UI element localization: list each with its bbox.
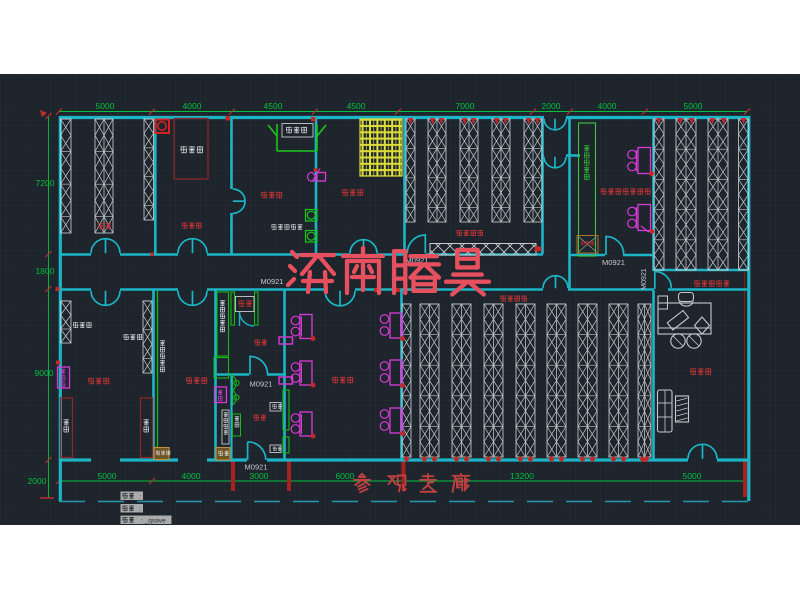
svg-text:2000: 2000 xyxy=(28,476,47,486)
svg-text:7200: 7200 xyxy=(36,178,55,188)
svg-text:9000: 9000 xyxy=(35,368,54,378)
svg-text:M0921: M0921 xyxy=(250,380,273,389)
svg-text:M0921: M0921 xyxy=(641,268,648,290)
svg-text:5000: 5000 xyxy=(98,471,117,481)
svg-text::: : xyxy=(139,506,141,513)
svg-text:4000: 4000 xyxy=(182,471,201,481)
svg-text:1800: 1800 xyxy=(36,266,55,276)
svg-text:M0921: M0921 xyxy=(602,258,625,267)
svg-text::: : xyxy=(139,494,141,501)
svg-text:4000: 4000 xyxy=(598,101,617,111)
svg-text:4000: 4000 xyxy=(183,101,202,111)
svg-text:M0921: M0921 xyxy=(245,463,268,472)
svg-text:M0921: M0921 xyxy=(261,277,284,286)
svg-text:5000: 5000 xyxy=(96,101,115,111)
svg-text:13200: 13200 xyxy=(510,471,534,481)
svg-text:: _qsave: : _qsave xyxy=(141,518,166,525)
svg-text:3000: 3000 xyxy=(250,471,269,481)
svg-text:2000: 2000 xyxy=(542,101,561,111)
svg-text:4500: 4500 xyxy=(264,101,283,111)
svg-text:5000: 5000 xyxy=(683,471,702,481)
svg-text:4500: 4500 xyxy=(347,101,366,111)
svg-text:6000: 6000 xyxy=(336,471,355,481)
svg-text:7000: 7000 xyxy=(456,101,475,111)
svg-text:5000: 5000 xyxy=(684,101,703,111)
